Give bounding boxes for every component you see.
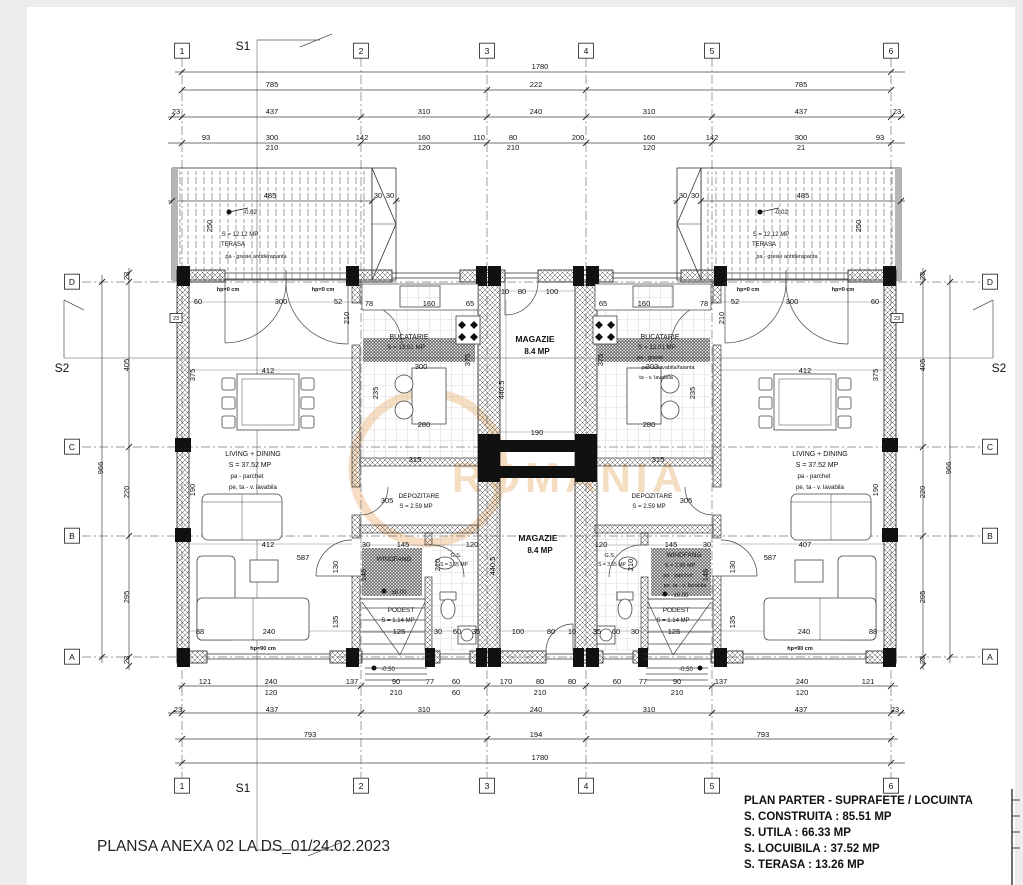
svg-text:210: 210 (717, 312, 726, 325)
svg-text:280: 280 (418, 420, 431, 429)
svg-text:90: 90 (392, 677, 400, 686)
svg-text:WINDFANG: WINDFANG (376, 556, 411, 563)
svg-text:S1: S1 (236, 781, 251, 795)
svg-text:60: 60 (452, 677, 460, 686)
svg-text:60: 60 (613, 677, 621, 686)
svg-text:785: 785 (266, 80, 279, 89)
svg-text:S = 3.55 MP: S = 3.55 MP (598, 562, 626, 568)
svg-text:6: 6 (889, 46, 894, 56)
svg-text:190: 190 (188, 484, 197, 497)
terrace-left (172, 168, 372, 280)
terraces (172, 168, 901, 280)
svg-text:60: 60 (453, 627, 461, 636)
svg-text:S = 37.52 MP: S = 37.52 MP (229, 462, 272, 469)
title-block: PLAN PARTER - SUPRAFETE / LOCUINTA S. CO… (744, 793, 1006, 873)
svg-text:80: 80 (518, 287, 526, 296)
area-terrace: S. TERASA : 13.26 MP (744, 857, 1006, 873)
svg-text:437: 437 (266, 705, 279, 714)
svg-text:3: 3 (485, 781, 490, 791)
svg-text:210: 210 (507, 143, 520, 152)
svg-text:120: 120 (796, 688, 809, 697)
svg-text:65: 65 (466, 299, 474, 308)
svg-text:440.5: 440.5 (488, 557, 497, 576)
svg-text:121: 121 (199, 677, 212, 686)
svg-text:440.5: 440.5 (497, 381, 506, 400)
svg-text:80: 80 (509, 133, 517, 142)
svg-text:ta - v. lavabila: ta - v. lavabila (639, 375, 673, 381)
svg-text:pa - gresie: pa - gresie (637, 355, 663, 361)
svg-text:S = 2.59 MP: S = 2.59 MP (399, 504, 432, 510)
svg-text:93: 93 (876, 133, 884, 142)
svg-text:60: 60 (612, 627, 620, 636)
svg-text:405: 405 (918, 359, 927, 372)
svg-text:23: 23 (172, 107, 180, 116)
svg-text:B: B (987, 531, 993, 541)
svg-text:hp=90 cm: hp=90 cm (250, 646, 276, 652)
svg-text:222: 222 (530, 80, 543, 89)
svg-text:305: 305 (680, 496, 693, 505)
svg-text:2: 2 (359, 781, 364, 791)
svg-text:88: 88 (196, 627, 204, 636)
svg-text:23: 23 (893, 107, 901, 116)
svg-text:145: 145 (665, 540, 678, 549)
svg-text:60: 60 (194, 297, 202, 306)
svg-text:315: 315 (652, 455, 665, 464)
svg-text:240: 240 (796, 677, 809, 686)
svg-text:-0.50: -0.50 (381, 667, 395, 673)
svg-text:G.S.: G.S. (450, 553, 461, 559)
svg-text:PODEST: PODEST (388, 607, 415, 614)
svg-text:120: 120 (418, 143, 431, 152)
svg-text:210: 210 (266, 143, 279, 152)
svg-text:235: 235 (371, 387, 380, 400)
svg-text:137: 137 (346, 677, 359, 686)
svg-text:8.4 MP: 8.4 MP (524, 347, 550, 356)
svg-text:S = 13.01 MP: S = 13.01 MP (638, 344, 676, 351)
svg-text:202: 202 (531, 445, 544, 454)
svg-text:±0.00: ±0.00 (674, 593, 690, 599)
svg-text:pa - parchet: pa - parchet (797, 473, 830, 480)
svg-text:77: 77 (639, 677, 647, 686)
svg-text:C: C (69, 442, 75, 452)
svg-text:S2: S2 (55, 361, 70, 375)
svg-text:-0.02: -0.02 (243, 210, 257, 216)
svg-text:4: 4 (584, 46, 589, 56)
svg-text:hp=0 cm: hp=0 cm (217, 287, 240, 293)
svg-text:412: 412 (799, 366, 812, 375)
svg-text:300: 300 (415, 362, 428, 371)
svg-text:170: 170 (500, 677, 513, 686)
svg-text:310: 310 (418, 705, 431, 714)
svg-text:412: 412 (262, 540, 275, 549)
svg-text:145: 145 (397, 540, 410, 549)
svg-text:pa - gresie antiderapanta: pa - gresie antiderapanta (225, 254, 287, 260)
svg-text:135: 135 (331, 616, 340, 629)
svg-text:793: 793 (304, 730, 317, 739)
svg-text:240: 240 (265, 677, 278, 686)
svg-text:437: 437 (266, 107, 279, 116)
terrace-right (701, 168, 901, 280)
svg-text:437: 437 (795, 107, 808, 116)
svg-text:5: 5 (710, 46, 715, 56)
svg-text:52: 52 (334, 297, 342, 306)
svg-text:793: 793 (757, 730, 770, 739)
svg-text:30: 30 (703, 540, 711, 549)
svg-text:80: 80 (536, 677, 544, 686)
svg-text:250: 250 (205, 220, 214, 233)
svg-text:1780: 1780 (532, 62, 549, 71)
svg-text:3: 3 (485, 46, 490, 56)
svg-text:210: 210 (390, 688, 403, 697)
svg-text:DEPOZITARE: DEPOZITARE (631, 493, 673, 500)
svg-text:23: 23 (894, 316, 900, 322)
svg-text:160: 160 (638, 299, 651, 308)
svg-text:300: 300 (275, 297, 288, 306)
svg-text:35: 35 (472, 627, 480, 636)
kitchen-table (412, 368, 446, 424)
svg-text:120: 120 (643, 143, 656, 152)
svg-text:235: 235 (688, 387, 697, 400)
svg-text:300: 300 (795, 133, 808, 142)
svg-text:80: 80 (568, 677, 576, 686)
svg-text:93: 93 (202, 133, 210, 142)
svg-text:G.S.: G.S. (604, 553, 615, 559)
svg-text:146: 146 (359, 569, 368, 582)
svg-text:305: 305 (381, 496, 394, 505)
svg-text:120: 120 (595, 540, 608, 549)
svg-text:375: 375 (596, 354, 605, 367)
svg-text:MAGAZIE: MAGAZIE (515, 334, 555, 344)
svg-text:PODEST: PODEST (663, 607, 690, 614)
svg-text:240: 240 (530, 107, 543, 116)
svg-text:785: 785 (795, 80, 808, 89)
svg-text:137: 137 (715, 677, 728, 686)
svg-text:142: 142 (356, 133, 369, 142)
svg-text:-0.02: -0.02 (774, 210, 788, 216)
svg-text:S = 37.52 MP: S = 37.52 MP (796, 462, 839, 469)
svg-text:S = 1.14 MP: S = 1.14 MP (381, 618, 414, 624)
area-usable: S. UTILA : 66.33 MP (744, 825, 1006, 841)
svg-text:194: 194 (530, 730, 543, 739)
svg-text:160: 160 (418, 133, 431, 142)
svg-text:hp=0 cm: hp=0 cm (737, 287, 760, 293)
svg-text:S = 3.55 MP: S = 3.55 MP (440, 562, 468, 568)
svg-text:220: 220 (122, 486, 131, 499)
area-built: S. CONSTRUITA : 85.51 MP (744, 809, 1006, 825)
svg-text:310: 310 (418, 107, 431, 116)
svg-text:hp=0 cm: hp=0 cm (312, 287, 335, 293)
svg-text:485: 485 (264, 191, 277, 200)
svg-text:966: 966 (96, 462, 105, 475)
svg-text:pe, ta - v. lavabila: pe, ta - v. lavabila (664, 583, 708, 589)
svg-text:210: 210 (626, 559, 635, 572)
svg-text:pa - parchet: pa - parchet (230, 473, 263, 480)
svg-text:78: 78 (700, 299, 708, 308)
svg-text:100: 100 (546, 287, 559, 296)
svg-text:88: 88 (869, 627, 877, 636)
svg-text:240: 240 (530, 705, 543, 714)
svg-text:S = 13.01 MP: S = 13.01 MP (387, 344, 425, 351)
svg-text:142: 142 (706, 133, 719, 142)
svg-text:-0.50: -0.50 (679, 667, 693, 673)
svg-text:160: 160 (643, 133, 656, 142)
svg-text:437: 437 (795, 705, 808, 714)
svg-text:405: 405 (122, 359, 131, 372)
svg-text:4: 4 (584, 781, 589, 791)
svg-text:121: 121 (862, 677, 875, 686)
svg-text:30: 30 (362, 540, 370, 549)
svg-text:23: 23 (174, 705, 182, 714)
svg-text:60: 60 (871, 297, 879, 306)
svg-text:TERASA: TERASA (752, 242, 776, 248)
svg-text:21: 21 (797, 143, 805, 152)
svg-text:D: D (69, 277, 75, 287)
svg-text:210: 210 (342, 312, 351, 325)
svg-text:295: 295 (122, 591, 131, 604)
svg-text:30: 30 (679, 191, 687, 200)
svg-text:78: 78 (365, 299, 373, 308)
stove-icon (456, 316, 480, 344)
svg-text:30: 30 (374, 191, 382, 200)
svg-text:5: 5 (710, 781, 715, 791)
svg-text:310: 310 (643, 705, 656, 714)
svg-text:130: 130 (728, 561, 737, 574)
svg-text:B: B (69, 531, 75, 541)
svg-text:1780: 1780 (532, 753, 549, 762)
svg-text:LIVING + DINING: LIVING + DINING (792, 451, 847, 458)
svg-text:S1: S1 (236, 39, 251, 53)
svg-text:30: 30 (434, 627, 442, 636)
svg-text:30: 30 (386, 191, 394, 200)
svg-text:77: 77 (426, 677, 434, 686)
svg-text:210: 210 (671, 688, 684, 697)
svg-text:220: 220 (918, 486, 927, 499)
svg-text:BUCATARIE: BUCATARIE (640, 334, 679, 341)
svg-text:pa - parchet: pa - parchet (663, 573, 693, 579)
svg-text:1: 1 (180, 781, 185, 791)
svg-text:280: 280 (643, 420, 656, 429)
svg-text:210: 210 (534, 688, 547, 697)
floor-plan-canvas: ROMANIA (0, 0, 1023, 885)
svg-text:160: 160 (423, 299, 436, 308)
svg-text:52: 52 (731, 297, 739, 306)
svg-text:A: A (987, 652, 993, 662)
svg-text:C: C (987, 442, 993, 452)
svg-text:LIVING + DINING: LIVING + DINING (225, 451, 280, 458)
svg-text:60: 60 (452, 688, 460, 697)
svg-text:375: 375 (188, 369, 197, 382)
svg-text:WINDFANG: WINDFANG (666, 552, 701, 559)
svg-text:100: 100 (512, 627, 525, 636)
area-livable: S. LOCUIBILA : 37.52 MP (744, 841, 1006, 857)
svg-text:587: 587 (297, 553, 310, 562)
svg-text:A: A (69, 652, 75, 662)
svg-text:120: 120 (466, 540, 479, 549)
svg-text:80: 80 (547, 627, 555, 636)
svg-text:65: 65 (599, 299, 607, 308)
svg-text:TERASA: TERASA (221, 242, 245, 248)
svg-text:S = 2.59 MP: S = 2.59 MP (632, 504, 665, 510)
svg-text:300: 300 (266, 133, 279, 142)
svg-text:587: 587 (764, 553, 777, 562)
svg-text:30: 30 (691, 191, 699, 200)
svg-text:35: 35 (593, 627, 601, 636)
sheet-note: PLANSA ANEXA 02 LA DS_01/24.02.2023 (97, 838, 390, 856)
svg-text:6: 6 (889, 781, 894, 791)
svg-text:pa - gresie antiderapanta: pa - gresie antiderapanta (756, 254, 818, 260)
svg-text:8.4 MP: 8.4 MP (527, 546, 553, 555)
svg-text:125: 125 (393, 627, 406, 636)
svg-text:S = 12.12 MP: S = 12.12 MP (222, 232, 259, 238)
svg-text:250: 250 (854, 220, 863, 233)
svg-text:120: 120 (265, 688, 278, 697)
svg-text:295: 295 (918, 591, 927, 604)
svg-text:BUCATARIE: BUCATARIE (389, 334, 428, 341)
svg-text:130: 130 (331, 561, 340, 574)
svg-text:190: 190 (531, 428, 544, 437)
svg-text:S = 12.12 MP: S = 12.12 MP (753, 232, 790, 238)
svg-text:pe, ta - v. lavabila: pe, ta - v. lavabila (229, 484, 278, 491)
svg-text:315: 315 (409, 455, 422, 464)
svg-text:1: 1 (180, 46, 185, 56)
svg-text:966: 966 (944, 462, 953, 475)
svg-text:DEPOZITARE: DEPOZITARE (398, 493, 440, 500)
svg-text:10: 10 (568, 627, 576, 636)
svg-text:S = 1.14 MP: S = 1.14 MP (656, 618, 689, 624)
svg-text:190: 190 (531, 471, 544, 480)
svg-text:hp=90 cm: hp=90 cm (787, 646, 813, 652)
svg-text:310: 310 (643, 107, 656, 116)
svg-text:110: 110 (473, 133, 485, 142)
svg-text:135: 135 (728, 616, 737, 629)
svg-text:S = 2.95 MP: S = 2.95 MP (665, 563, 696, 569)
svg-text:30: 30 (631, 627, 639, 636)
svg-text:D: D (987, 277, 993, 287)
svg-text:MAGAZIE: MAGAZIE (518, 533, 558, 543)
svg-text:hp=0 cm: hp=0 cm (832, 287, 855, 293)
svg-text:10: 10 (501, 287, 509, 296)
svg-text:485: 485 (797, 191, 810, 200)
svg-text:23: 23 (173, 316, 179, 322)
svg-text:375: 375 (463, 354, 472, 367)
svg-text:±0.00: ±0.00 (392, 590, 408, 596)
svg-text:2: 2 (359, 46, 364, 56)
svg-text:200: 200 (572, 133, 585, 142)
svg-text:23: 23 (891, 705, 899, 714)
svg-text:125: 125 (668, 627, 681, 636)
svg-text:pe - v. lavabila/faianta: pe - v. lavabila/faianta (641, 365, 695, 371)
svg-text:190: 190 (871, 484, 880, 497)
svg-text:240: 240 (798, 627, 811, 636)
svg-text:240: 240 (263, 627, 276, 636)
title-block-title: PLAN PARTER - SUPRAFETE / LOCUINTA (744, 793, 1006, 809)
svg-text:S2: S2 (992, 361, 1007, 375)
svg-text:300: 300 (786, 297, 799, 306)
svg-text:407: 407 (799, 540, 812, 549)
stove-icon (593, 316, 617, 344)
svg-text:90: 90 (673, 677, 681, 686)
svg-text:375: 375 (871, 369, 880, 382)
svg-text:412: 412 (262, 366, 275, 375)
svg-text:146: 146 (701, 569, 710, 582)
svg-text:pe, ta - v. lavabila: pe, ta - v. lavabila (796, 484, 845, 491)
